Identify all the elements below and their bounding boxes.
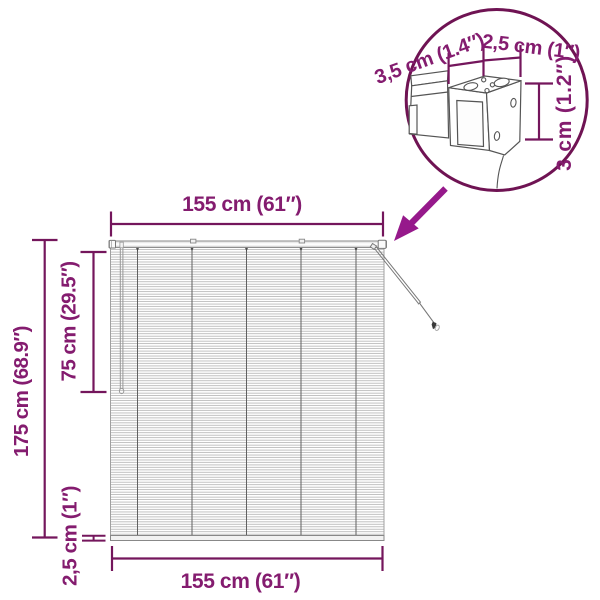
svg-text:175 cm (68.9″): 175 cm (68.9″) (10, 326, 33, 457)
svg-text:155 cm (61″): 155 cm (61″) (181, 570, 301, 593)
svg-text:2,5 cm (1″): 2,5 cm (1″) (59, 486, 82, 586)
svg-text:75 cm (29.5″): 75 cm (29.5″) (58, 261, 81, 381)
svg-text:155 cm (61″): 155 cm (61″) (182, 193, 302, 216)
svg-text:3 cm (1.2″): 3 cm (1.2″) (553, 55, 576, 171)
